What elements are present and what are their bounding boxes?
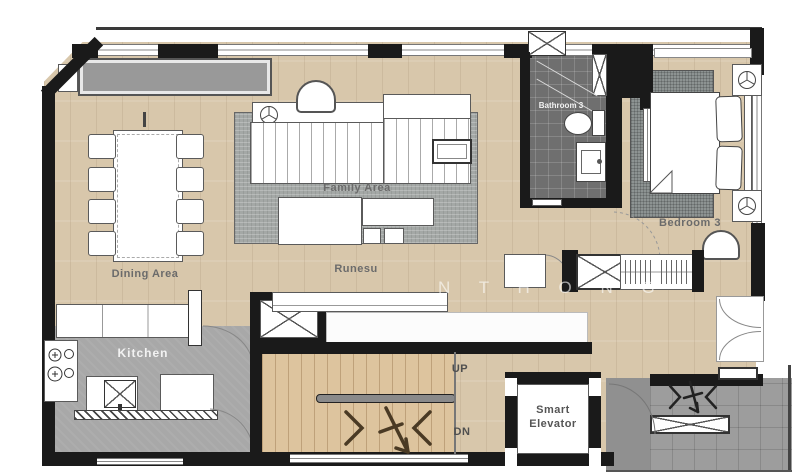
bathroom-sliding-door <box>532 199 562 206</box>
right-double-doors <box>716 296 764 362</box>
bottom-window-left <box>97 458 183 465</box>
exterior-bottom-line <box>606 470 792 472</box>
dining-chair <box>88 199 116 224</box>
ac-unit-box <box>528 31 566 56</box>
top-outer-line <box>96 27 762 30</box>
bathroom-label: Bathroom 3 <box>539 101 583 110</box>
bed-headboard <box>744 90 752 196</box>
toilet-tank <box>592 110 605 136</box>
family-arch-chair <box>296 80 336 113</box>
sofa-side-table <box>432 139 472 164</box>
kitchen-counter <box>56 304 196 338</box>
sofa-main <box>250 122 388 184</box>
elevator-label-line1: Smart <box>536 404 570 416</box>
bed-pillow-1 <box>715 96 743 143</box>
bedroom-arch-chair <box>702 230 740 260</box>
dining-chair <box>88 134 116 159</box>
dining-area-label: Dining Area <box>112 268 179 280</box>
side-stool-1 <box>363 228 381 244</box>
dining-chair <box>88 231 116 256</box>
wall-top-b <box>158 44 218 58</box>
exterior-door-arc <box>608 382 656 434</box>
wall-pillar <box>188 290 202 346</box>
bedroom-window-sill <box>654 48 752 58</box>
wall-right-mid <box>751 223 765 301</box>
stair-up-label: UP <box>452 363 468 375</box>
tv-console <box>272 292 448 312</box>
coffee-table-large <box>278 197 362 245</box>
bed-pillow-2 <box>715 146 743 191</box>
dining-table <box>113 130 183 262</box>
lamp-icon <box>736 195 758 217</box>
kitchen-label: Kitchen <box>117 346 168 360</box>
side-stool-2 <box>384 228 404 244</box>
family-area-label: Family Area <box>323 182 390 194</box>
stair-top-wall <box>250 342 592 354</box>
bed-blanket-fold-icon <box>648 168 674 194</box>
corridor-post-2 <box>692 250 704 292</box>
stove-burners-icon <box>44 340 78 402</box>
stair-direction-arrows-icon <box>332 404 448 456</box>
elevator-door-gap <box>589 378 601 396</box>
exit-stair-arrows-icon <box>662 380 724 414</box>
dining-chair <box>176 134 204 159</box>
coffee-table-small <box>362 198 434 226</box>
toilet-bowl-icon <box>564 112 592 135</box>
bathroom-shelf <box>592 54 607 96</box>
dining-table-edge <box>117 134 179 258</box>
wall-left <box>42 86 55 466</box>
bathroom-wall-right-top <box>606 44 642 98</box>
dining-chair <box>176 167 204 192</box>
wall-top-c <box>368 44 402 58</box>
counter-edge-hatch <box>74 410 218 420</box>
bedroom-label: Bedroom 3 <box>659 217 721 229</box>
lamp-icon <box>736 69 758 91</box>
elevator-door-gap <box>505 448 517 466</box>
dining-chair <box>88 167 116 192</box>
floor-plan: Dining Area Family Area Runesu Kitchen B… <box>0 0 800 473</box>
kitchen-door-arc <box>202 324 254 368</box>
door-leaf-arc <box>719 331 761 360</box>
kitchen-door-arc-lower <box>208 408 256 456</box>
balcony-ledge <box>78 58 272 96</box>
elevator-door-gap <box>589 448 601 466</box>
dining-chair <box>176 231 204 256</box>
kitchen-island-block <box>160 374 214 412</box>
stair-storage-strip <box>326 312 588 344</box>
bedroom-door-arc <box>612 210 662 260</box>
bathroom-wall-right <box>606 96 622 206</box>
pendant-light-icon <box>143 112 146 127</box>
sink-tap-icon <box>597 159 602 164</box>
exterior-right-edge <box>788 365 791 472</box>
bathroom-wall-left <box>520 52 530 206</box>
exterior-bench <box>650 415 730 434</box>
elevator-label-line2: Elevator <box>529 418 576 430</box>
sofa-right-back <box>383 94 471 120</box>
watermark: N T H O N G <box>438 278 667 298</box>
exterior-wall-box <box>718 367 758 380</box>
elevator-door-gap <box>505 378 517 396</box>
stair-dn-label: DN <box>454 426 471 438</box>
stair-handrail <box>316 394 456 403</box>
dining-chair <box>176 199 204 224</box>
stair-left-wall <box>250 346 262 464</box>
door-leaf-arc <box>719 299 761 328</box>
runesu-label: Runesu <box>334 263 377 275</box>
